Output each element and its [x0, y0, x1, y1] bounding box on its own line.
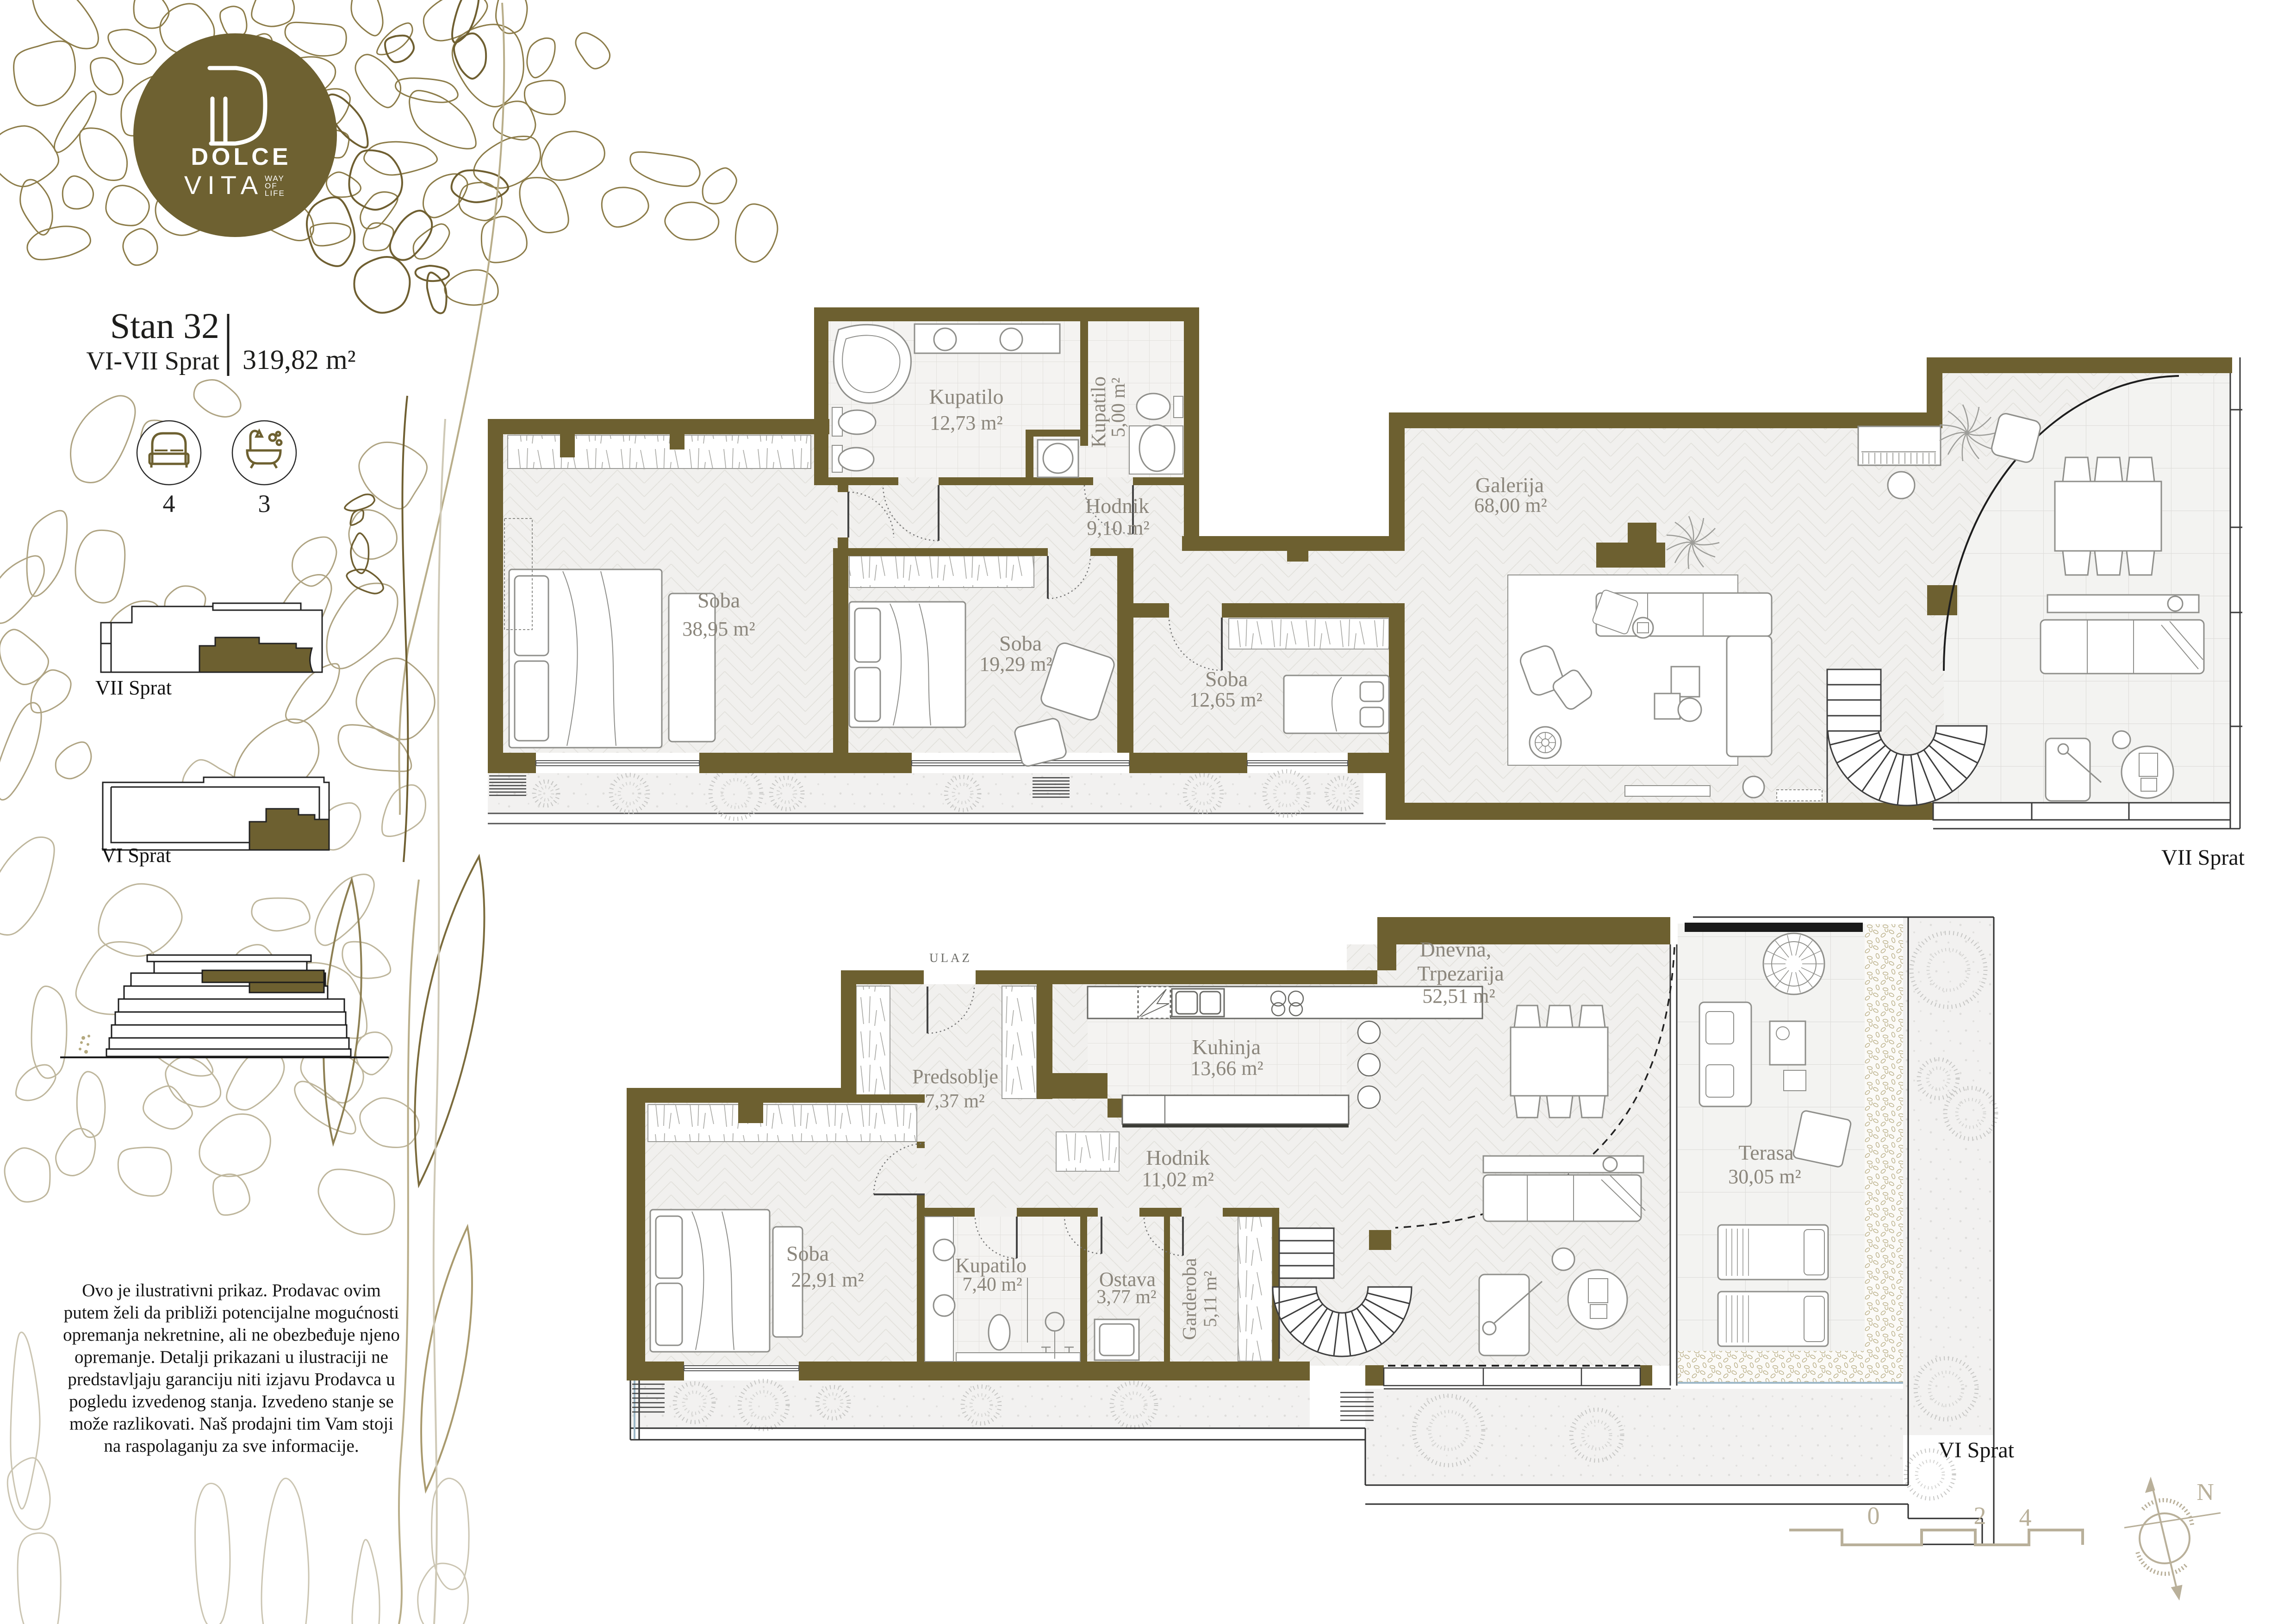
- svg-text:Soba: Soba: [697, 588, 740, 612]
- svg-text:VII Sprat: VII Sprat: [2161, 845, 2245, 870]
- svg-text:12,73 m²: 12,73 m²: [930, 412, 1002, 434]
- svg-text:može razlikovati. Naš prodajni: može razlikovati. Naš prodajni tim Vam s…: [69, 1414, 393, 1434]
- svg-text:38,95 m²: 38,95 m²: [682, 618, 755, 640]
- svg-text:5,00 m²: 5,00 m²: [1108, 377, 1129, 437]
- svg-text:opremanja nekretnine, ali ne o: opremanja nekretnine, ali ne obezbeđuje …: [63, 1325, 400, 1345]
- svg-text:4: 4: [163, 490, 175, 518]
- svg-text:68,00 m²: 68,00 m²: [1474, 494, 1547, 517]
- svg-text:11,02 m²: 11,02 m²: [1142, 1168, 1214, 1191]
- svg-text:2: 2: [1974, 1502, 1986, 1530]
- svg-text:Terasa: Terasa: [1738, 1141, 1793, 1164]
- svg-text:VI Sprat: VI Sprat: [101, 844, 171, 867]
- svg-text:Kupatilo: Kupatilo: [955, 1254, 1027, 1277]
- svg-text:30,05 m²: 30,05 m²: [1728, 1165, 1801, 1188]
- svg-text:Kuhinja: Kuhinja: [1192, 1035, 1261, 1059]
- svg-text:VI-VII Sprat: VI-VII Sprat: [86, 347, 219, 375]
- svg-text:pogledu izvedenog stanja. Izve: pogledu izvedenog stanja. Izvedeno stanj…: [69, 1392, 394, 1412]
- svg-text:7,37 m²: 7,37 m²: [925, 1091, 984, 1112]
- svg-text:Hodnik: Hodnik: [1085, 494, 1149, 518]
- svg-text:9,10 m²: 9,10 m²: [1087, 517, 1149, 539]
- svg-text:Trpezarija: Trpezarija: [1417, 962, 1504, 985]
- svg-text:4: 4: [2019, 1504, 2032, 1531]
- svg-text:LIFE: LIFE: [265, 189, 285, 198]
- svg-text:12,65 m²: 12,65 m²: [1189, 688, 1262, 711]
- svg-text:13,66 m²: 13,66 m²: [1190, 1057, 1263, 1080]
- svg-text:opremanje. Detalji prikazani u: opremanje. Detalji prikazani u ilustraci…: [75, 1347, 388, 1367]
- svg-text:Soba: Soba: [1205, 667, 1248, 691]
- svg-text:19,29 m²: 19,29 m²: [979, 653, 1052, 675]
- svg-text:Kupatilo: Kupatilo: [1087, 376, 1110, 448]
- svg-text:VII Sprat: VII Sprat: [95, 676, 172, 699]
- svg-text:Soba: Soba: [786, 1242, 829, 1265]
- svg-text:3: 3: [258, 490, 271, 518]
- svg-text:Kupatilo: Kupatilo: [929, 385, 1004, 408]
- svg-text:ULAZ: ULAZ: [929, 951, 972, 965]
- svg-text:Stan 32: Stan 32: [110, 306, 219, 346]
- svg-text:putem želi da približi potenci: putem želi da približi potencijalne mogu…: [64, 1303, 399, 1323]
- svg-text:Galerija: Galerija: [1475, 473, 1544, 497]
- svg-text:VI Sprat: VI Sprat: [1938, 1438, 2015, 1462]
- svg-text:319,82 m²: 319,82 m²: [243, 344, 356, 375]
- svg-text:DOLCE: DOLCE: [191, 144, 292, 170]
- svg-text:predstavljaju garanciju niti i: predstavljaju garanciju niti izjavu Prod…: [68, 1369, 395, 1389]
- svg-text:Dnevna,: Dnevna,: [1420, 937, 1492, 961]
- svg-text:N: N: [2196, 1479, 2214, 1505]
- svg-text:Soba: Soba: [999, 631, 1042, 655]
- svg-text:Predsoblje: Predsoblje: [912, 1065, 998, 1088]
- svg-text:7,40 m²: 7,40 m²: [962, 1274, 1022, 1295]
- svg-text:na raspolaganju za sve informa: na raspolaganju za sve informacije.: [104, 1436, 359, 1456]
- svg-text:3,77 m²: 3,77 m²: [1096, 1287, 1156, 1308]
- svg-text:22,91 m²: 22,91 m²: [791, 1268, 864, 1291]
- svg-text:Ovo je ilustrativni prikaz. Pr: Ovo je ilustrativni prikaz. Prodavac ovi…: [82, 1280, 381, 1300]
- svg-text:VITA: VITA: [184, 170, 264, 200]
- svg-text:52,51 m²: 52,51 m²: [1422, 985, 1495, 1007]
- svg-text:0: 0: [1867, 1502, 1880, 1530]
- svg-text:Garderoba: Garderoba: [1179, 1258, 1201, 1340]
- svg-text:Hodnik: Hodnik: [1146, 1146, 1210, 1169]
- svg-text:5,11 m²: 5,11 m²: [1200, 1271, 1220, 1327]
